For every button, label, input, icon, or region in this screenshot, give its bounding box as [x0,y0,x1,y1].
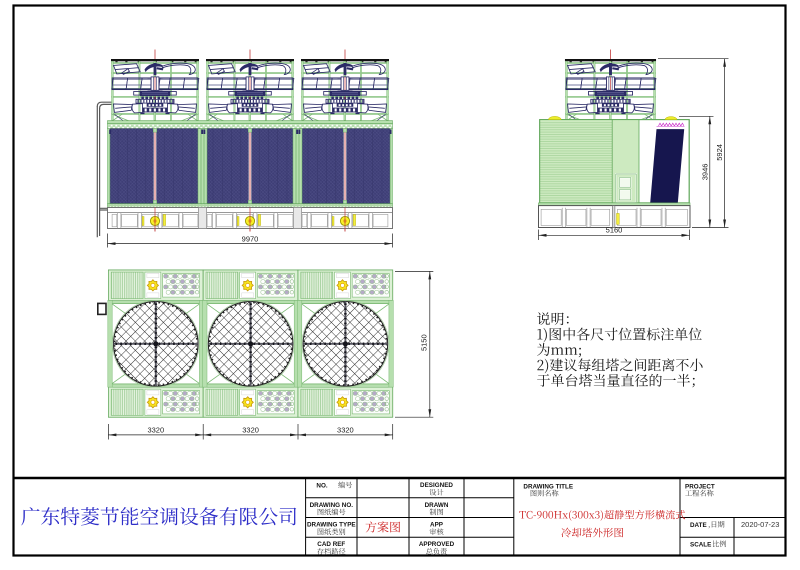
svg-text:3320: 3320 [147,426,164,435]
svg-text:DRAWING TYPE: DRAWING TYPE [307,522,356,529]
svg-text:5160: 5160 [606,226,623,235]
svg-text:DRAWING TITLE: DRAWING TITLE [523,483,573,490]
svg-text:APP: APP [430,522,443,529]
svg-text:3320: 3320 [337,426,354,435]
svg-text:DRAWN: DRAWN [425,502,449,509]
svg-text:9970: 9970 [242,234,259,243]
svg-text:NO.: NO. [316,483,327,490]
svg-text:DESIGNED: DESIGNED [420,482,453,489]
svg-text:5150: 5150 [419,334,428,351]
svg-text:CAD REF: CAD REF [317,541,345,548]
svg-text:SCALE: SCALE [690,542,711,549]
svg-text:5924: 5924 [715,144,724,161]
svg-text:3946: 3946 [700,164,709,181]
svg-text:PROJECT: PROJECT [685,483,715,490]
svg-text:2020-07-23: 2020-07-23 [741,520,779,529]
svg-text:APPROVED: APPROVED [419,541,455,548]
svg-text:3320: 3320 [242,426,259,435]
svg-text:DATE: DATE [690,522,707,529]
svg-text:DRAWING NO.: DRAWING NO. [310,502,354,509]
